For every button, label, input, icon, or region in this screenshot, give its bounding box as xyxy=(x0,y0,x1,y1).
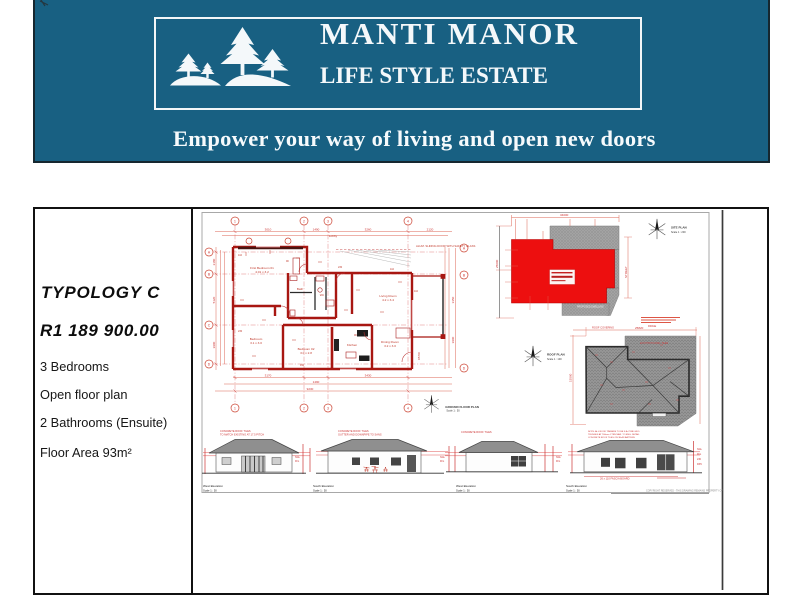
svg-text:2120: 2120 xyxy=(427,228,434,232)
svg-text:3.0 x 2.8: 3.0 x 2.8 xyxy=(300,351,312,355)
svg-text:NOTE: ALL ROOF TIMBERS TO BE S: NOTE: ALL ROOF TIMBERS TO BE S.A. PINE G… xyxy=(588,430,640,433)
svg-text:FFL: FFL xyxy=(440,460,445,463)
svg-text:Scale 1 : 50: Scale 1 : 50 xyxy=(313,489,327,493)
svg-text:FFL: FFL xyxy=(697,453,702,456)
svg-text:4.01 x 3.2: 4.01 x 3.2 xyxy=(255,270,269,274)
svg-text:3.2 x 3.0: 3.2 x 3.0 xyxy=(384,344,396,348)
svg-text:CONCRETE ROOF TILES: CONCRETE ROOF TILES xyxy=(461,430,492,434)
svg-text:Scale 1 : 50: Scale 1 : 50 xyxy=(203,489,217,493)
svg-text:3350: 3350 xyxy=(451,296,455,303)
svg-text:CONCRETE ROOF TILES: CONCRETE ROOF TILES xyxy=(338,429,369,433)
svg-text:90: 90 xyxy=(354,334,357,337)
svg-text:NGL: NGL xyxy=(440,456,446,459)
svg-text:ROOF COVERING: ROOF COVERING xyxy=(592,326,614,330)
svg-text:Kitchen: Kitchen xyxy=(347,343,358,347)
svg-text:15560: 15560 xyxy=(569,373,573,382)
svg-text:Scale 1 : 50: Scale 1 : 50 xyxy=(456,489,470,493)
svg-text:3: 3 xyxy=(327,406,329,410)
svg-text:NGL: NGL xyxy=(556,456,562,459)
svg-text:TRUSSES AT 760mm CTRS MAX. TO: TRUSSES AT 760mm CTRS MAX. TO ENG. DETAI… xyxy=(588,433,640,436)
svg-text:Bath: Bath xyxy=(297,287,304,291)
svg-text:PROPOSED DWELLING: PROPOSED DWELLING xyxy=(577,306,604,309)
svg-text:Scale 1 : 200: Scale 1 : 200 xyxy=(671,231,686,234)
svg-text:1: 1 xyxy=(234,406,236,410)
svg-text:SITE PLAN: SITE PLAN xyxy=(671,226,687,230)
svg-text:FFL: FFL xyxy=(295,460,300,463)
svg-text:Wc: Wc xyxy=(320,293,325,297)
svg-text:110: 110 xyxy=(414,290,419,293)
svg-text:South Elevation: South Elevation xyxy=(313,484,334,488)
svg-text:Scale 1 : 50: Scale 1 : 50 xyxy=(446,410,460,413)
svg-text:230: 230 xyxy=(697,458,702,461)
svg-text:2: 2 xyxy=(303,219,305,223)
svg-text:4: 4 xyxy=(407,406,409,410)
svg-text:9230: 9230 xyxy=(307,387,314,391)
svg-text:3900: 3900 xyxy=(451,336,455,343)
svg-text:West Elevation: West Elevation xyxy=(203,484,223,488)
svg-text:3900: 3900 xyxy=(212,341,216,348)
svg-text:Scale 1 : 100: Scale 1 : 100 xyxy=(547,358,562,361)
svg-text:3430: 3430 xyxy=(365,374,372,378)
svg-text:4: 4 xyxy=(407,219,409,223)
svg-text:ALUM. SLIDING DOOR WITH SAFETY: ALUM. SLIDING DOOR WITH SAFETY GLASS xyxy=(416,244,475,248)
svg-text:PATIO: PATIO xyxy=(417,351,421,360)
svg-text:90: 90 xyxy=(286,260,289,263)
svg-text:25820: 25820 xyxy=(635,326,644,330)
svg-text:Lobby: Lobby xyxy=(329,234,338,238)
svg-text:COPYRIGHT RESERVED - THIS DRAW: COPYRIGHT RESERVED - THIS DRAWING REMAIN… xyxy=(646,490,723,493)
svg-text:110: 110 xyxy=(390,268,395,271)
svg-text:CONCRETE ROOF TILES: CONCRETE ROOF TILES xyxy=(220,429,251,433)
svg-text:5120: 5120 xyxy=(212,296,216,303)
svg-text:22.5 PITCH CONC. TILES: 22.5 PITCH CONC. TILES xyxy=(640,342,669,345)
svg-text:DPC: DPC xyxy=(697,463,702,466)
svg-text:4.2 x 3.4: 4.2 x 3.4 xyxy=(382,298,394,302)
svg-text:230: 230 xyxy=(238,330,243,333)
svg-text:DW: DW xyxy=(300,364,305,367)
svg-text:3260: 3260 xyxy=(365,228,372,232)
svg-text:2180: 2180 xyxy=(212,258,216,265)
svg-text:26 x 110 FASCIA BOARD: 26 x 110 FASCIA BOARD xyxy=(600,477,630,481)
svg-text:Scale 1 : 50: Scale 1 : 50 xyxy=(566,489,580,493)
svg-text:34000: 34000 xyxy=(560,213,569,217)
svg-text:TO MATCH EXISTING AT 17.5 PITC: TO MATCH EXISTING AT 17.5 PITCH xyxy=(220,433,264,437)
svg-text:1490: 1490 xyxy=(313,380,320,384)
svg-text:3010: 3010 xyxy=(265,228,272,232)
svg-text:ROOF PLAN: ROOF PLAN xyxy=(547,353,565,357)
svg-text:GROUND FLOOR PLAN: GROUND FLOOR PLAN xyxy=(445,405,479,409)
svg-text:1: 1 xyxy=(234,219,236,223)
svg-text:NGL: NGL xyxy=(697,448,703,451)
svg-text:3: 3 xyxy=(327,219,329,223)
svg-text:RIDGE: RIDGE xyxy=(648,324,656,328)
svg-text:3170: 3170 xyxy=(265,374,272,378)
svg-text:3.1 x 3.0: 3.1 x 3.0 xyxy=(250,341,262,345)
svg-text:25000: 25000 xyxy=(495,259,499,268)
svg-text:FFL: FFL xyxy=(556,460,561,463)
svg-text:110: 110 xyxy=(238,254,243,257)
svg-text:South Elevation: South Elevation xyxy=(566,484,587,488)
svg-text:STREET: STREET xyxy=(624,266,628,278)
svg-text:West Elevation: West Elevation xyxy=(456,484,476,488)
svg-text:1490: 1490 xyxy=(313,228,320,232)
svg-text:GUTTER AND DOWNPIPE TO SANS: GUTTER AND DOWNPIPE TO SANS xyxy=(338,433,382,437)
svg-text:NGL: NGL xyxy=(295,456,301,459)
svg-text:2: 2 xyxy=(303,406,305,410)
svg-text:CONCRETE ROOF TILES ON 38x38 B: CONCRETE ROOF TILES ON 38x38 BATTENS xyxy=(588,436,635,439)
svg-text:230: 230 xyxy=(338,266,343,269)
